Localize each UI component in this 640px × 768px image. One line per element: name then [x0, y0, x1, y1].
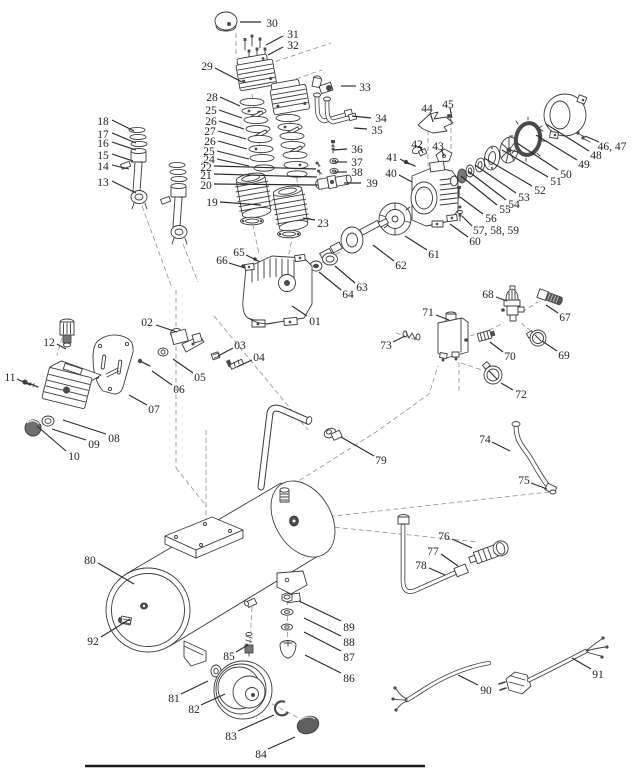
part-label-48: 48: [590, 150, 602, 162]
part-29-cylinder-head-rear: [269, 78, 310, 115]
diagram-canvas: 0102030405060708091011121314151617181920…: [0, 0, 640, 768]
part-19-cylinder-front: [234, 171, 274, 220]
leader-line-15: [112, 154, 133, 161]
part-71-pressure-switch: [438, 312, 468, 362]
part-label-82: 82: [188, 704, 200, 716]
part-label-76: 76: [438, 531, 450, 543]
part-84-hub-cap: [295, 713, 321, 736]
part-label-74: 74: [479, 434, 491, 446]
leader-line-26: [218, 141, 247, 149]
part-label-08: 08: [108, 433, 120, 445]
part-label-64: 64: [342, 289, 354, 301]
part-label-63: 63: [356, 282, 368, 294]
leader-line-60: [450, 224, 468, 237]
leader-line-81: [181, 681, 208, 694]
part-label-15: 15: [97, 150, 109, 162]
tank-left-leg: [184, 641, 206, 666]
part-label-18: 18: [97, 116, 109, 128]
part-label-90: 90: [480, 685, 492, 697]
part-label-40: 40: [385, 168, 397, 180]
part-72-gauge: [482, 362, 502, 384]
part-label-04: 04: [253, 352, 265, 364]
part-label-70: 70: [504, 351, 516, 363]
leader-line-20: [214, 184, 318, 185]
part-label-03: 03: [234, 340, 246, 352]
parts-76-78-drain-pipe: [398, 515, 510, 592]
part-label-06: 06: [173, 384, 185, 396]
part-label-92: 92: [87, 636, 99, 648]
leader-line-10: [37, 426, 66, 451]
part-label-41: 41: [386, 152, 398, 164]
leader-line-90: [458, 675, 478, 685]
leader-line-88: [304, 618, 341, 636]
leader-line-55: [461, 176, 497, 205]
part-label-87: 87: [343, 652, 355, 664]
tank-handle: [261, 408, 313, 487]
part-label-67: 67: [559, 312, 571, 324]
part-label-35: 35: [371, 125, 383, 137]
part-label-73: 73: [380, 340, 392, 352]
part-06-screw: [138, 359, 150, 366]
leader-line-40: [399, 175, 412, 182]
valve-plate-stack-front: [240, 98, 274, 171]
leader-line-67: [546, 305, 558, 313]
part-label-62: 62: [395, 260, 407, 272]
part-23-base-gasket: [278, 230, 301, 238]
part-label-46-47: 46, 47: [598, 141, 627, 153]
leader-line-13: [112, 181, 136, 193]
leader-line-25: [219, 110, 242, 118]
part-label-34: 34: [375, 113, 387, 125]
leader-line-86: [305, 655, 341, 673]
part-label-02: 02: [141, 317, 153, 329]
part-label-91: 91: [592, 669, 604, 681]
leader-line-08: [63, 420, 106, 434]
part-label-79: 79: [375, 455, 387, 467]
part-label-83: 83: [225, 731, 237, 743]
leader-line-25: [217, 151, 249, 159]
part-label-29: 29: [201, 61, 213, 73]
part-40-motor-stator: [411, 161, 458, 227]
part-label-05: 05: [194, 372, 206, 384]
leader-line-27: [218, 131, 246, 139]
part-label-86: 86: [343, 673, 355, 685]
leader-line-74: [492, 442, 510, 451]
part-12-intake-filter: [60, 319, 74, 347]
part-label-33: 33: [359, 82, 371, 94]
part-label-09: 09: [88, 439, 100, 451]
part-79-plug: [323, 426, 343, 440]
part-label-71: 71: [422, 307, 434, 319]
part-label-19: 19: [206, 197, 218, 209]
part-label-45: 45: [442, 99, 454, 111]
part-label-80: 80: [84, 555, 96, 567]
part-label-32: 32: [287, 40, 299, 52]
part-label-07: 07: [148, 404, 160, 416]
part-label-49: 49: [578, 159, 590, 171]
leader-line-57-58-59: [462, 216, 472, 226]
leader-line-09: [52, 429, 86, 440]
part-69-gauge: [526, 330, 546, 346]
part-33-elbow-fitting: [312, 76, 333, 94]
part-label-13: 13: [97, 177, 109, 189]
part-05-washer: [158, 348, 168, 356]
leader-line-35: [354, 128, 367, 129]
part-label-11: 11: [4, 372, 15, 384]
part-label-52: 52: [534, 185, 546, 197]
part-label-23: 23: [317, 218, 329, 230]
part-label-36: 36: [351, 144, 363, 156]
part-30-air-filter: [215, 12, 237, 31]
part-61-rotor: [379, 203, 411, 235]
part-label-56: 56: [485, 213, 497, 225]
leader-line-68: [496, 297, 507, 301]
part-label-30: 30: [266, 18, 278, 30]
part-label-81: 81: [168, 693, 180, 705]
exploded-view-drawing: 0102030405060708091011121314151617181920…: [0, 0, 640, 768]
leader-line-72: [501, 383, 513, 390]
part-01-crankcase: [243, 254, 312, 327]
leader-line-31: [266, 36, 283, 45]
leader-line-61: [405, 236, 427, 250]
part-label-84: 84: [255, 749, 267, 761]
part-label-66: 66: [216, 255, 228, 267]
part-label-68: 68: [482, 289, 494, 301]
part-90-motor-cord: [391, 663, 489, 712]
part-label-69: 69: [558, 350, 570, 362]
leader-line-36: [333, 149, 347, 150]
part-label-42: 42: [411, 139, 423, 151]
part-23-cylinder-rear: [271, 184, 311, 233]
part-48-end-bell: [544, 94, 587, 139]
leader-line-63: [335, 266, 355, 283]
part-label-44: 44: [421, 103, 433, 115]
part-85-drain-valve: [245, 632, 253, 656]
part-label-61: 61: [428, 249, 440, 261]
part-label-12: 12: [43, 337, 55, 349]
leader-line-32: [268, 47, 283, 55]
parts-63-64-bearings: [310, 253, 338, 271]
leader-line-07: [129, 395, 147, 405]
leader-line-77: [441, 554, 458, 566]
part-label-28: 28: [206, 92, 218, 104]
part-label-85: 85: [223, 651, 235, 663]
part-label-50: 50: [560, 169, 572, 181]
part-label-75: 75: [518, 475, 530, 487]
leader-line-02: [156, 325, 177, 332]
leader-line-87: [304, 632, 341, 651]
part-29-cylinder-head-front: [235, 53, 277, 91]
leader-line-53: [475, 165, 516, 193]
part-label-77: 77: [427, 546, 439, 558]
part-labels-layer: 0102030405060708091011121314151617181920…: [4, 18, 626, 761]
part-label-39: 39: [366, 178, 378, 190]
part-label-10: 10: [68, 451, 80, 463]
part-04-bolt: [226, 359, 244, 369]
part-label-17: 17: [97, 129, 109, 141]
part-label-78: 78: [415, 560, 427, 572]
leader-line-24: [217, 159, 249, 166]
part-19-base-gasket: [241, 217, 264, 225]
part-label-89: 89: [343, 622, 355, 634]
part-label-53: 53: [518, 192, 530, 204]
leader-line-62: [373, 245, 394, 261]
part-label-51: 51: [550, 176, 562, 188]
leader-line-76: [452, 539, 472, 548]
part-label-88: 88: [343, 637, 355, 649]
leader-line-78: [429, 568, 445, 575]
leader-line-70: [490, 342, 503, 352]
part-label-55: 55: [499, 204, 511, 216]
part-label-60: 60: [469, 236, 481, 248]
part-82-wheel: [214, 661, 272, 719]
leader-line-26: [219, 121, 244, 129]
leader-line-28: [220, 97, 240, 106]
part-label-72: 72: [515, 389, 527, 401]
part-label-43: 43: [432, 141, 444, 153]
part-70-fitting: [477, 329, 495, 341]
part-80-tank: [106, 469, 348, 652]
parts-34-35-discharge-tubes: [314, 93, 357, 122]
part-41-screw: [404, 160, 415, 166]
part-label-14: 14: [97, 161, 109, 173]
leader-line-69: [542, 341, 557, 351]
part-91-power-cord-plug: [499, 636, 609, 694]
part-83-retaining-clip: [275, 701, 288, 715]
part-09-ring: [42, 416, 54, 426]
leader-line-03: [218, 348, 233, 356]
leader-line-73: [393, 336, 405, 342]
leader-line-79: [341, 437, 374, 456]
part-label-01: 01: [309, 316, 321, 328]
piston-rod-set-rear: [161, 162, 187, 244]
part-67-fitting: [537, 289, 564, 306]
leader-line-56: [460, 197, 483, 214]
part-62-crankshaft: [320, 218, 389, 258]
part-label-38: 38: [351, 167, 363, 179]
leader-line-84: [268, 737, 295, 749]
leader-line-91: [572, 658, 591, 669]
leader-line-18: [112, 120, 134, 131]
part-label-65: 65: [233, 247, 245, 259]
leader-line-06: [152, 371, 172, 385]
part-68-regulator: [501, 286, 524, 321]
part-label-25: 25: [203, 146, 215, 158]
part-07-gasket-plate: [93, 335, 133, 394]
leader-line-64: [319, 272, 341, 290]
